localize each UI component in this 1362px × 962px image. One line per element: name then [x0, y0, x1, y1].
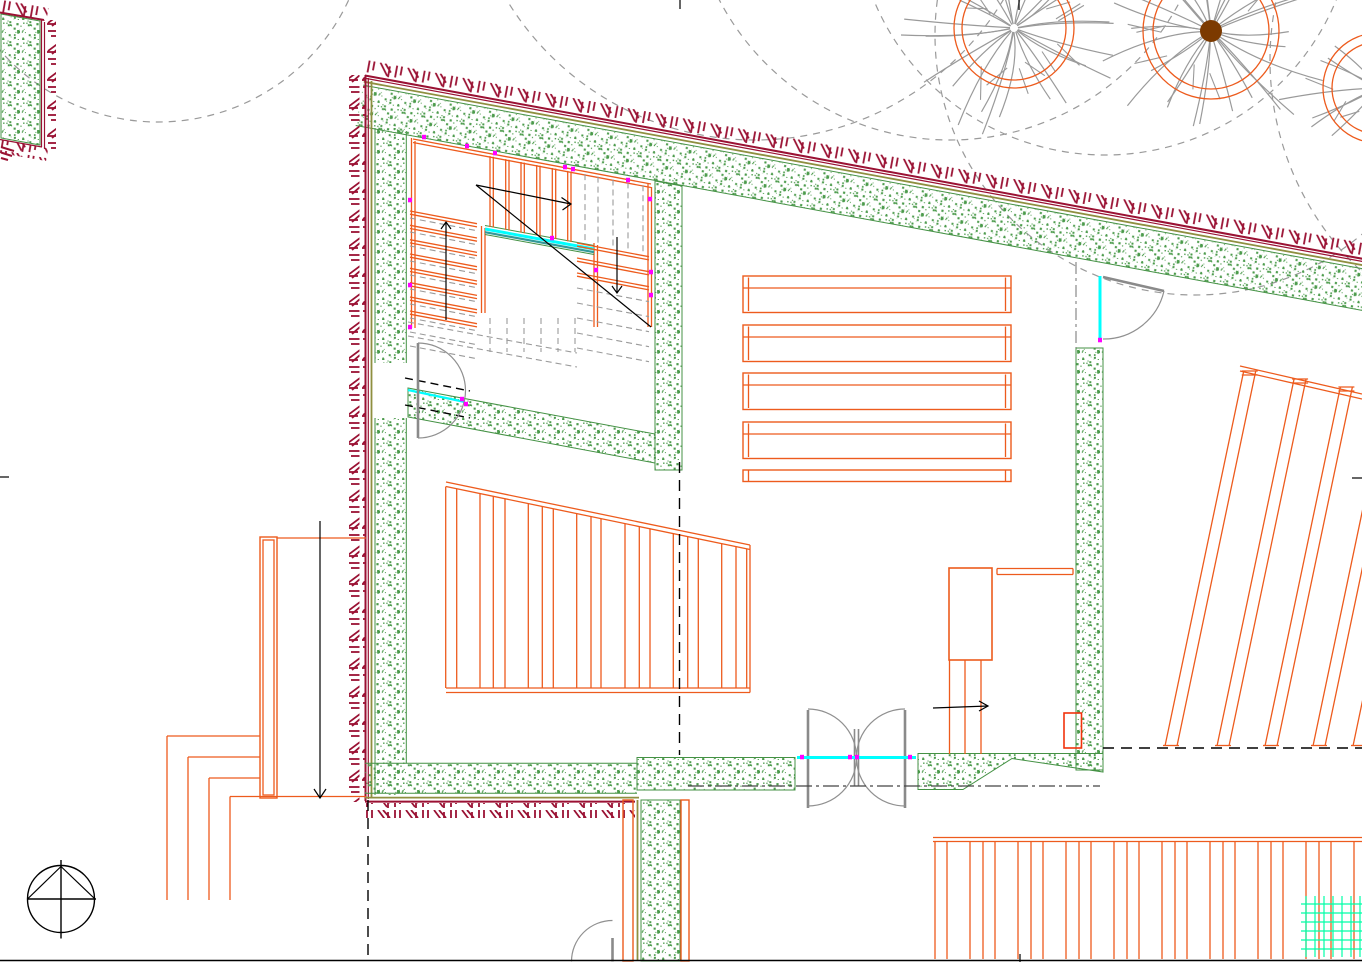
detached-wall-segment [0, 0, 56, 161]
cad-floorplan-viewport [0, 0, 1362, 962]
exterior-terrace-steps [167, 521, 366, 900]
south-west-exterior-wall [365, 763, 639, 818]
stair-treads [408, 156, 649, 367]
lower-building-wall-strip [623, 800, 689, 961]
cabinet-unit [949, 568, 1073, 754]
east-partition-wall [1076, 348, 1103, 770]
lower-room-door [572, 921, 613, 962]
stair-room-south-wall [408, 388, 655, 463]
bottom-terrace-decking [933, 838, 1362, 960]
tree [1091, 0, 1334, 126]
right-terrace-decking [1163, 366, 1362, 746]
floor-plan-canvas [0, 0, 1362, 962]
trees [901, 0, 1362, 183]
slatted-platforms [743, 276, 1011, 482]
north-arrow [27, 860, 96, 939]
stair-direction-arrows [441, 185, 651, 327]
cabinet-direction-arrow [933, 701, 988, 711]
u-shaped-staircase [405, 138, 652, 438]
reference-lines [368, 462, 1362, 958]
west-exterior-wall [349, 75, 406, 802]
stair-hall-partition-wall [655, 181, 682, 470]
tree [1279, 0, 1362, 183]
east-wall-door [1076, 262, 1164, 348]
building-walls [349, 59, 1362, 961]
tree [901, 0, 1114, 134]
left-room-decking [446, 482, 750, 693]
